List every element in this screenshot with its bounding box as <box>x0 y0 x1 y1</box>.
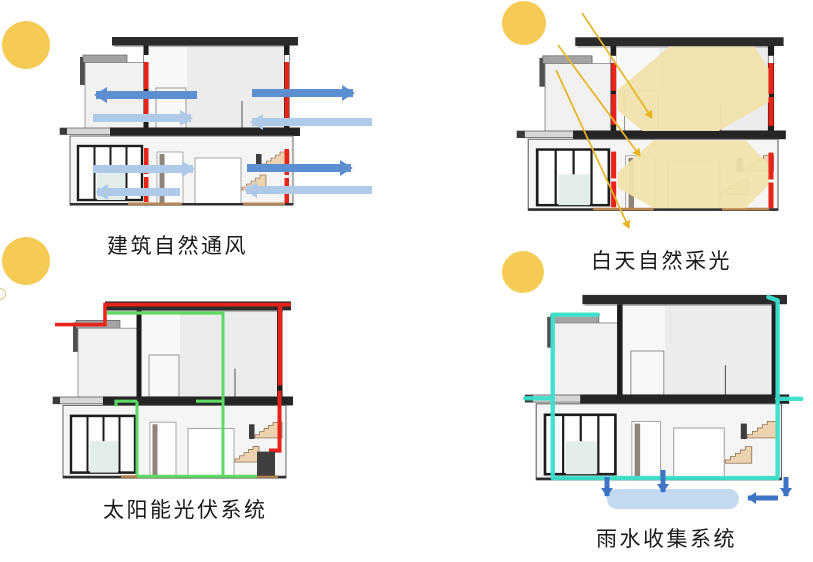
equipment-box <box>257 452 275 476</box>
caption-rainwater-collection: 雨水收集系统 <box>596 523 737 553</box>
sun-icon <box>0 289 6 300</box>
caption-natural-ventilation: 建筑自然通风 <box>107 230 248 260</box>
sun-icon <box>2 21 50 69</box>
caption-solar-pv: 太阳能光伏系统 <box>103 494 268 524</box>
panel-daylighting <box>502 1 786 228</box>
water-tank <box>607 489 739 509</box>
sun-icon <box>502 1 546 45</box>
panel-natural-ventilation <box>2 21 372 206</box>
rainwater-house <box>525 295 801 480</box>
sun-icon <box>502 251 544 293</box>
panel-solar-pv <box>0 237 293 478</box>
diagram-canvas <box>0 0 813 562</box>
sun-icon <box>2 237 50 285</box>
panel-rainwater-collection <box>502 251 801 509</box>
solar-house <box>53 301 293 478</box>
caption-daylighting: 白天自然采光 <box>591 245 732 275</box>
green-building-systems-diagram: 建筑自然通风 白天自然采光 太阳能光伏系统 雨水收集系统 <box>0 0 813 562</box>
daylighting-house <box>517 37 786 211</box>
